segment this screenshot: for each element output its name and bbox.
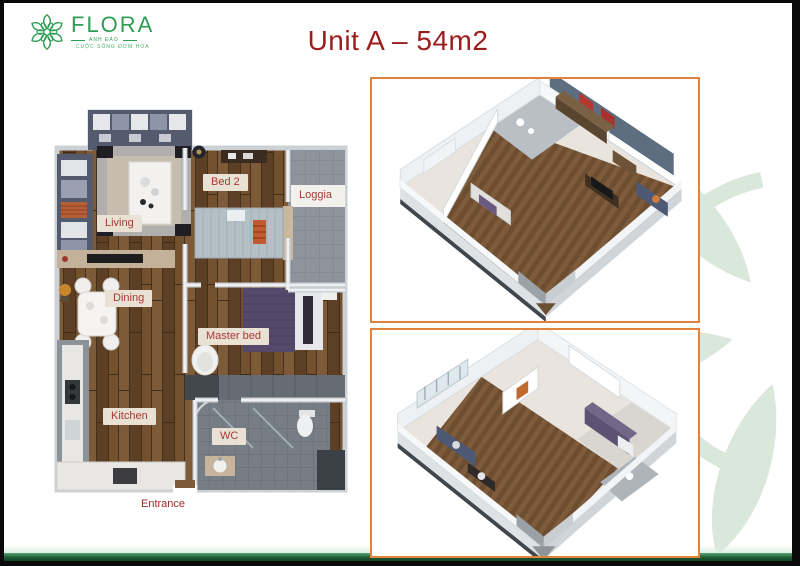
flora-logo: FLORA ANH ĐÀO CUỘC SỐNG ĐƠM HOA	[28, 13, 154, 51]
flora-flower-icon	[28, 13, 66, 51]
room-label-master-bed: Master bed	[198, 328, 269, 345]
flora-tagline: CUỘC SỐNG ĐƠM HOA	[71, 44, 154, 50]
render-box-bottom	[370, 328, 700, 558]
3d-render-bottom	[372, 330, 698, 556]
floor-plan-image	[53, 90, 349, 502]
room-label-dining: Dining	[105, 290, 152, 307]
flora-wordmark: FLORA	[71, 13, 154, 37]
slide: FLORA ANH ĐÀO CUỘC SỐNG ĐƠM HOA Unit A –…	[4, 3, 792, 561]
room-label-living: Living	[97, 215, 142, 232]
room-label-wc: WC	[212, 428, 246, 445]
room-label-bed2: Bed 2	[203, 174, 248, 191]
room-label-loggia: Loggia	[294, 187, 337, 204]
room-label-kitchen: Kitchen	[103, 408, 156, 425]
3d-render-top	[372, 79, 698, 321]
screenshot-frame: FLORA ANH ĐÀO CUỘC SỐNG ĐƠM HOA Unit A –…	[0, 0, 800, 566]
flora-subtitle: ANH ĐÀO	[89, 37, 119, 43]
render-box-top	[370, 77, 700, 323]
entrance-label: Entrance	[141, 497, 185, 512]
floor-plan: Living Bed 2 Loggia Dining Master bed Ki…	[53, 90, 349, 522]
